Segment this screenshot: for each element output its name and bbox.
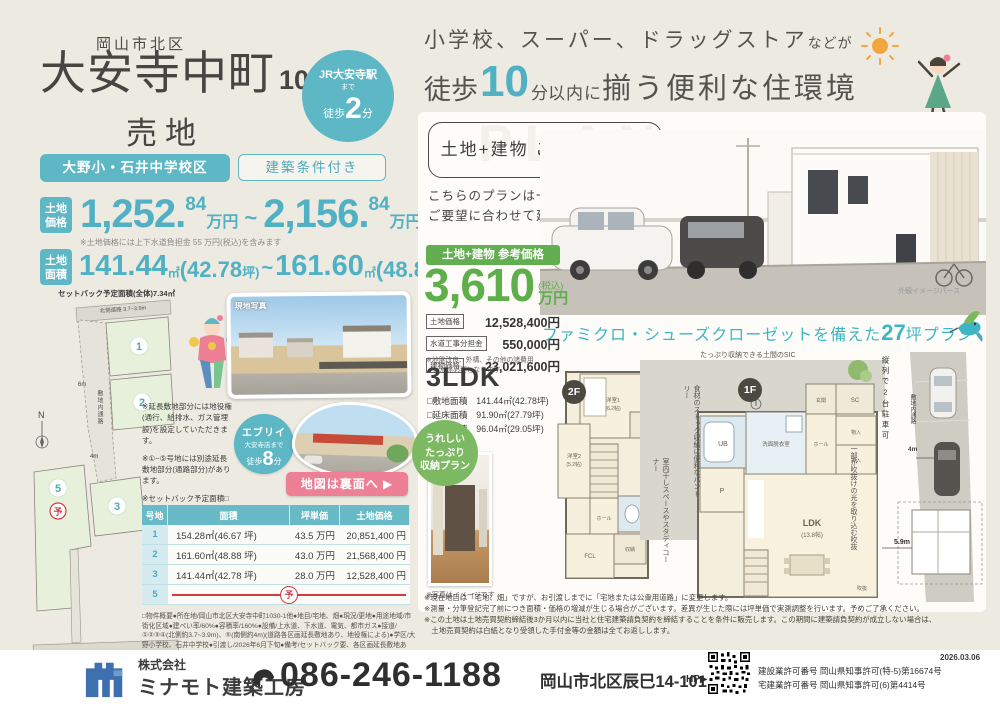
svg-text:収納: 収納 <box>625 546 635 553</box>
annotation-passage: 敷地内通路 <box>908 394 917 442</box>
table-row: 3 141.44㎡(42.78 坪) 28.0 万円 12,528,400 円 <box>142 565 410 585</box>
disclaimers: ※現在地目は「宅地、畑」ですが、お引渡しまでに「宅地または公衆用道路」に変更しま… <box>424 592 990 636</box>
price-note: ※土地価格には上下水道負担金 55 万円(税込)を含みます <box>80 237 281 248</box>
headline-line1: 小学校、スーパー、ドラッグストア などが <box>424 30 853 51</box>
flyer-date: 2026.03.06 <box>940 653 980 662</box>
school-district-badge: 大野小・石井中学校区 <box>40 154 230 182</box>
svg-text:6m: 6m <box>78 382 86 388</box>
site-photo: 現地写真 <box>230 295 407 395</box>
annotation-study: 室内干しスペースやスタディコーナー <box>650 458 670 568</box>
svg-text:1: 1 <box>136 341 142 353</box>
note-2: ※①~⑤号地には別途延長敷地部分(通路部分)があります。 <box>142 453 232 487</box>
mini-site-plan: 5.9m <box>878 352 988 604</box>
table-row: 2 161.60㎡(48.88 坪) 43.0 万円 21,568,400 円 <box>142 545 410 565</box>
svg-text:吹抜: 吹抜 <box>857 585 867 592</box>
lots-table: 号地 面積 坪単価 土地価格 1 154.28㎡(46.67 坪) 43.5 万… <box>142 505 410 605</box>
company-logo-icon <box>84 658 128 698</box>
qr-code <box>708 652 750 694</box>
svg-text:5.9m: 5.9m <box>894 539 910 546</box>
svg-text:予: 予 <box>53 507 62 517</box>
render-caption: 外観イメージパース <box>898 286 960 296</box>
svg-text:(5.2帖): (5.2帖) <box>566 461 582 468</box>
svg-text:洋室1: 洋室1 <box>606 396 620 404</box>
svg-text:ホール: ホール <box>596 516 611 522</box>
site-photo-label: 現地写真 <box>235 301 267 312</box>
plan-tagline: ファミクロ・シューズクローゼットを備えた 27 坪プラン <box>542 322 974 344</box>
table-row: 1 154.28㎡(46.67 坪) 43.5 万円 20,851,400 円 <box>142 525 410 545</box>
svg-text:4m: 4m <box>90 454 98 460</box>
compass-icon: N <box>36 410 48 448</box>
land-price-label: 土地価格 <box>40 197 72 233</box>
svg-text:ホール: ホール <box>813 442 828 448</box>
phone-number: 086-246-1188 <box>280 656 502 695</box>
license-info: 建設業許可番号 岡山県知事許可(特-5)第16674号 宅建業許可番号 岡山県知… <box>758 664 942 693</box>
lots-table-header: 号地 面積 坪単価 土地価格 <box>142 505 410 525</box>
svg-text:UB: UB <box>718 441 728 448</box>
plan-price: 3,610 (税込) 万円 <box>424 262 568 308</box>
svg-text:N: N <box>38 410 45 420</box>
hp-label: HP▶ <box>686 674 708 685</box>
headline-line2: 徒歩 10 分 以内に 揃う便利な住環境 <box>424 60 858 104</box>
condition-badge: 建築条件付き <box>238 154 386 181</box>
svg-text:5: 5 <box>55 483 61 495</box>
land-area-range: 141.44㎡ (42.78坪) ~ 161.60㎡ (48.88坪) <box>79 252 456 281</box>
svg-text:(6.2帖): (6.2帖) <box>605 405 621 412</box>
company-address: 岡山市北区辰巳14-101 <box>540 668 707 692</box>
plan-type-title: 3LDK <box>426 362 501 393</box>
station-walk: 徒歩 <box>323 109 345 124</box>
annotation-4m: 4m <box>908 446 917 453</box>
svg-text:P: P <box>720 488 725 495</box>
land-area-label: 土地面積 <box>40 249 72 285</box>
land-price-range: 1,252.84万円 ~ 2,156.84万円 <box>80 194 422 234</box>
site-photo-frame: 現地写真 <box>226 291 411 399</box>
note-1: ※延長敷地部分には地役権(通行、給排水、ガス管埋設)を設定していただきます。 <box>142 401 232 447</box>
svg-text:FCL: FCL <box>584 554 596 560</box>
station-made: まで <box>302 82 394 92</box>
badge-1f: 1F <box>738 378 762 402</box>
property-title: 大安寺中町 1030 <box>40 50 339 96</box>
map-banner: 地図は裏面へ ▶ <box>286 472 408 496</box>
station-name: JR大安寺駅 <box>302 50 394 82</box>
svg-text:LDK: LDK <box>803 518 822 528</box>
title-text: 大安寺中町 <box>40 50 275 96</box>
annotation-pantry: 食材のストック収納に便利なパントリー <box>681 385 701 497</box>
dancing-girl-icon <box>905 48 971 116</box>
flyer-page: 岡山市北区 大安寺中町 1030 売地 JR大安寺駅 まで 徒歩 2 分 大野小… <box>0 0 1000 706</box>
annotation-sic: たっぷり収納できる土間のSIC <box>700 350 796 360</box>
supermarket-walk-badge: エブリイ 大安寺店まで 徒歩 8 分 <box>234 414 294 474</box>
storage-circle-badge: うれしい たっぷり 収納プラン <box>412 420 478 486</box>
passage-label: 敷地内通路 <box>95 390 104 425</box>
supermarket-photo <box>291 400 420 480</box>
badge-2f: 2F <box>562 380 586 404</box>
reserved-mark: 予 <box>280 586 298 604</box>
annotation-parking: 縦列で2台駐車可 <box>880 356 891 448</box>
svg-text:洗面脱衣室: 洗面脱衣室 <box>762 440 790 448</box>
annotation-void: 一部が吹抜けの光を取り込む吹抜 <box>848 445 858 565</box>
svg-text:SC: SC <box>851 398 860 404</box>
sun-icon <box>860 26 900 66</box>
svg-text:玄関: 玄関 <box>816 397 826 404</box>
svg-text:3: 3 <box>114 501 120 513</box>
sale-type-label: 売地 <box>126 108 204 153</box>
table-row-reserved: 5 予 <box>142 585 410 605</box>
station-unit: 分 <box>362 109 373 124</box>
station-minutes: 2 <box>345 94 362 124</box>
phone-icon <box>250 666 278 694</box>
svg-text:物入: 物入 <box>851 429 861 436</box>
station-walk-badge: JR大安寺駅 まで 徒歩 2 分 <box>302 50 394 142</box>
svg-text:洋室2: 洋室2 <box>567 452 581 460</box>
svg-text:(13.8帖): (13.8帖) <box>801 531 823 539</box>
hummingbird-icon <box>948 306 986 344</box>
